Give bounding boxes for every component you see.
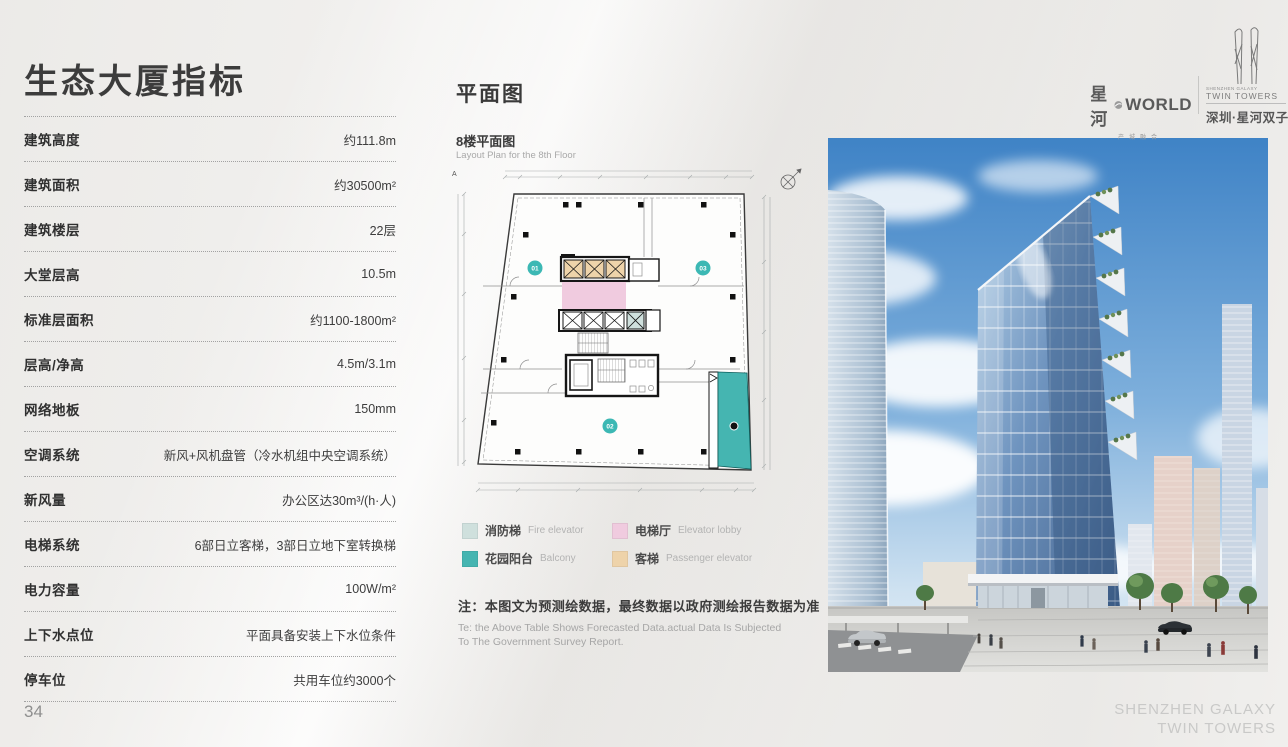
logo-divider bbox=[1198, 76, 1199, 114]
spec-value: 150mm bbox=[354, 402, 396, 416]
table-row: 建筑面积约30500m² bbox=[24, 162, 396, 207]
spec-value: 平面具备安装上下水位条件 bbox=[246, 625, 396, 644]
balcony-swatch bbox=[462, 551, 478, 567]
legend-label: 消防梯 bbox=[485, 522, 521, 539]
legend-label: 客梯 bbox=[635, 550, 659, 567]
table-row: 电力容量100W/m² bbox=[24, 567, 396, 612]
legend-label-en: Passenger elevator bbox=[666, 553, 752, 564]
balcony-column bbox=[730, 422, 738, 430]
page-title: 生态大厦指标 bbox=[24, 54, 246, 103]
plan-subtitle-en: Layout Plan for the 8th Floor bbox=[456, 150, 576, 161]
table-row: 标准层面积约1100-1800m² bbox=[24, 297, 396, 342]
table-row: 建筑高度约111.8m bbox=[24, 117, 396, 162]
legend-label: 花园阳台 bbox=[485, 550, 533, 567]
spec-label: 网络地板 bbox=[24, 399, 80, 419]
left-tower bbox=[828, 190, 888, 608]
spec-table: 建筑高度约111.8m 建筑面积约30500m² 建筑楼层22层 大堂层高10.… bbox=[24, 116, 396, 702]
globe-icon bbox=[1114, 98, 1123, 112]
core-room bbox=[646, 310, 660, 331]
table-row: 空调系统新风+风机盘管（冷水机组中央空调系统） bbox=[24, 432, 396, 477]
page-number: 34 bbox=[24, 702, 43, 722]
twin-towers-cn: 深圳·星河双子塔 bbox=[1206, 107, 1286, 126]
spec-label: 停车位 bbox=[24, 669, 66, 689]
table-row: 新风量办公区达30m³/(h·人) bbox=[24, 477, 396, 522]
spec-value: 4.5m/3.1m bbox=[337, 357, 396, 371]
zone-label: 02 bbox=[606, 424, 614, 431]
spec-value: 办公区达30m³/(h·人) bbox=[282, 490, 396, 509]
spec-value: 6部日立客梯，3部日立地下室转换梯 bbox=[195, 535, 396, 554]
spec-label: 层高/净高 bbox=[24, 354, 84, 374]
galaxy-world-en: WORLD bbox=[1125, 95, 1192, 115]
north-arrow-icon bbox=[781, 169, 801, 189]
spec-value: 约30500m² bbox=[334, 175, 396, 194]
spec-label: 建筑楼层 bbox=[24, 219, 80, 239]
twin-towers-logo: SHENZHEN GALAXY TWIN TOWERS 深圳·星河双子塔 bbox=[1206, 24, 1286, 126]
legend-label-en: Balcony bbox=[540, 553, 576, 564]
legend-label-en: Elevator lobby bbox=[678, 525, 741, 536]
table-row: 停车位共用车位约3000个 bbox=[24, 657, 396, 702]
garden-balcony bbox=[718, 372, 751, 469]
footer-brand: SHENZHEN GALAXY TWIN TOWERS bbox=[1000, 700, 1276, 738]
spec-label: 建筑面积 bbox=[24, 174, 80, 194]
spec-value: 约111.8m bbox=[344, 130, 396, 149]
table-row: 层高/净高4.5m/3.1m bbox=[24, 342, 396, 387]
table-row: 上下水点位平面具备安装上下水位条件 bbox=[24, 612, 396, 657]
spec-label: 上下水点位 bbox=[24, 624, 94, 644]
footer-line2: TWIN TOWERS bbox=[1000, 719, 1276, 738]
spec-value: 新风+风机盘管（冷水机组中央空调系统） bbox=[164, 445, 396, 464]
spec-value: 共用车位约3000个 bbox=[293, 670, 396, 689]
balcony-buffer bbox=[709, 372, 718, 468]
spec-value: 22层 bbox=[370, 220, 396, 239]
spec-label: 大堂层高 bbox=[24, 264, 80, 284]
plan-subtitle-cn: 8楼平面图 bbox=[456, 131, 515, 150]
disclaimer-cn: 注：本图文为预测绘数据，最终数据以政府测绘报告数据为准 bbox=[458, 596, 820, 615]
twin-towers-icon bbox=[1218, 24, 1274, 86]
elevator-lobby bbox=[562, 282, 626, 309]
stairs bbox=[598, 359, 625, 382]
core-room bbox=[629, 259, 659, 281]
spec-label: 建筑高度 bbox=[24, 129, 80, 149]
fire-elevator bbox=[627, 312, 644, 329]
legend-label-en: Fire elevator bbox=[528, 525, 584, 536]
passenger-elevator-swatch bbox=[612, 551, 628, 567]
galaxy-world-cn: 星河 bbox=[1088, 80, 1111, 130]
elevator-lobby-swatch bbox=[612, 523, 628, 539]
galaxy-world-subtext: 产城融合 bbox=[1088, 132, 1192, 141]
spec-label: 空调系统 bbox=[24, 444, 80, 464]
spec-value: 约1100-1800m² bbox=[310, 310, 396, 329]
spec-label: 新风量 bbox=[24, 489, 66, 509]
plan-legend: 消防梯 Fire elevator 电梯厅 Elevator lobby 花园阳… bbox=[462, 522, 798, 567]
fire-elevator-swatch bbox=[462, 523, 478, 539]
legend-item: 消防梯 Fire elevator bbox=[462, 522, 612, 539]
spec-label: 电梯系统 bbox=[24, 534, 80, 554]
zone-label: 03 bbox=[699, 266, 707, 273]
spec-value: 100W/m² bbox=[345, 582, 396, 596]
section-title: 平面图 bbox=[456, 78, 525, 108]
table-row: 大堂层高10.5m bbox=[24, 252, 396, 297]
footer-line1: SHENZHEN GALAXY bbox=[1000, 700, 1276, 719]
disclaimer-en: Te: the Above Table Shows Forecasted Dat… bbox=[458, 621, 788, 649]
service-elevators bbox=[563, 312, 624, 329]
galaxy-world-logo: 星河 WORLD 产城融合 bbox=[1088, 80, 1192, 141]
core-room bbox=[570, 360, 592, 390]
legend-label: 电梯厅 bbox=[635, 522, 671, 539]
floor-plan: A bbox=[450, 164, 820, 516]
legend-item: 电梯厅 Elevator lobby bbox=[612, 522, 798, 539]
spec-label: 标准层面积 bbox=[24, 309, 94, 329]
spec-value: 10.5m bbox=[361, 267, 396, 281]
spec-label: 电力容量 bbox=[24, 579, 80, 599]
table-row: 电梯系统6部日立客梯，3部日立地下室转换梯 bbox=[24, 522, 396, 567]
table-row: 网络地板150mm bbox=[24, 387, 396, 432]
twin-towers-mid-text: TWIN TOWERS bbox=[1206, 91, 1286, 104]
legend-item: 客梯 Passenger elevator bbox=[612, 550, 798, 567]
passenger-elevators bbox=[564, 260, 625, 278]
zone-label: 01 bbox=[531, 266, 539, 273]
table-row: 建筑楼层22层 bbox=[24, 207, 396, 252]
axis-label: A bbox=[452, 171, 457, 178]
slide: 生态大厦指标 建筑高度约111.8m 建筑面积约30500m² 建筑楼层22层 … bbox=[0, 0, 1288, 747]
building-rendering bbox=[828, 138, 1268, 672]
legend-item: 花园阳台 Balcony bbox=[462, 550, 612, 567]
